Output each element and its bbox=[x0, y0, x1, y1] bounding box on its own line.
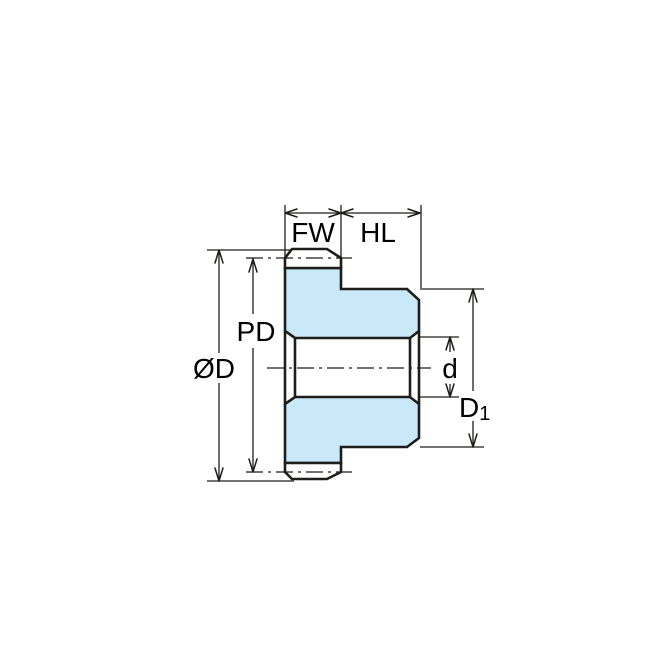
diagram-canvas: FW HL ØD PD bbox=[0, 0, 670, 670]
bottom-tooth bbox=[285, 463, 341, 479]
pd-label: PD bbox=[237, 316, 276, 347]
gear-body bbox=[285, 249, 419, 479]
gear-body-upper-section bbox=[285, 268, 419, 338]
bore-label: d bbox=[442, 353, 458, 384]
hub-diameter-label-subscript: 1 bbox=[479, 403, 490, 425]
bore-dimension: d bbox=[442, 337, 458, 397]
hl-label: HL bbox=[360, 217, 396, 248]
od-label: ØD bbox=[193, 353, 235, 384]
gear-dimension-diagram: FW HL ØD PD bbox=[0, 0, 670, 670]
hub-diameter-label-main: D bbox=[459, 392, 479, 423]
fw-label: FW bbox=[291, 217, 335, 248]
od-dimension: ØD bbox=[193, 250, 235, 481]
hub-diameter-dimension: D1 bbox=[459, 289, 490, 447]
gear-body-lower-section bbox=[285, 397, 419, 463]
hub-diameter-label: D1 bbox=[459, 392, 490, 425]
pd-dimension: PD bbox=[237, 259, 276, 472]
fw-dimension: FW bbox=[285, 209, 341, 248]
hl-dimension: HL bbox=[341, 209, 420, 248]
